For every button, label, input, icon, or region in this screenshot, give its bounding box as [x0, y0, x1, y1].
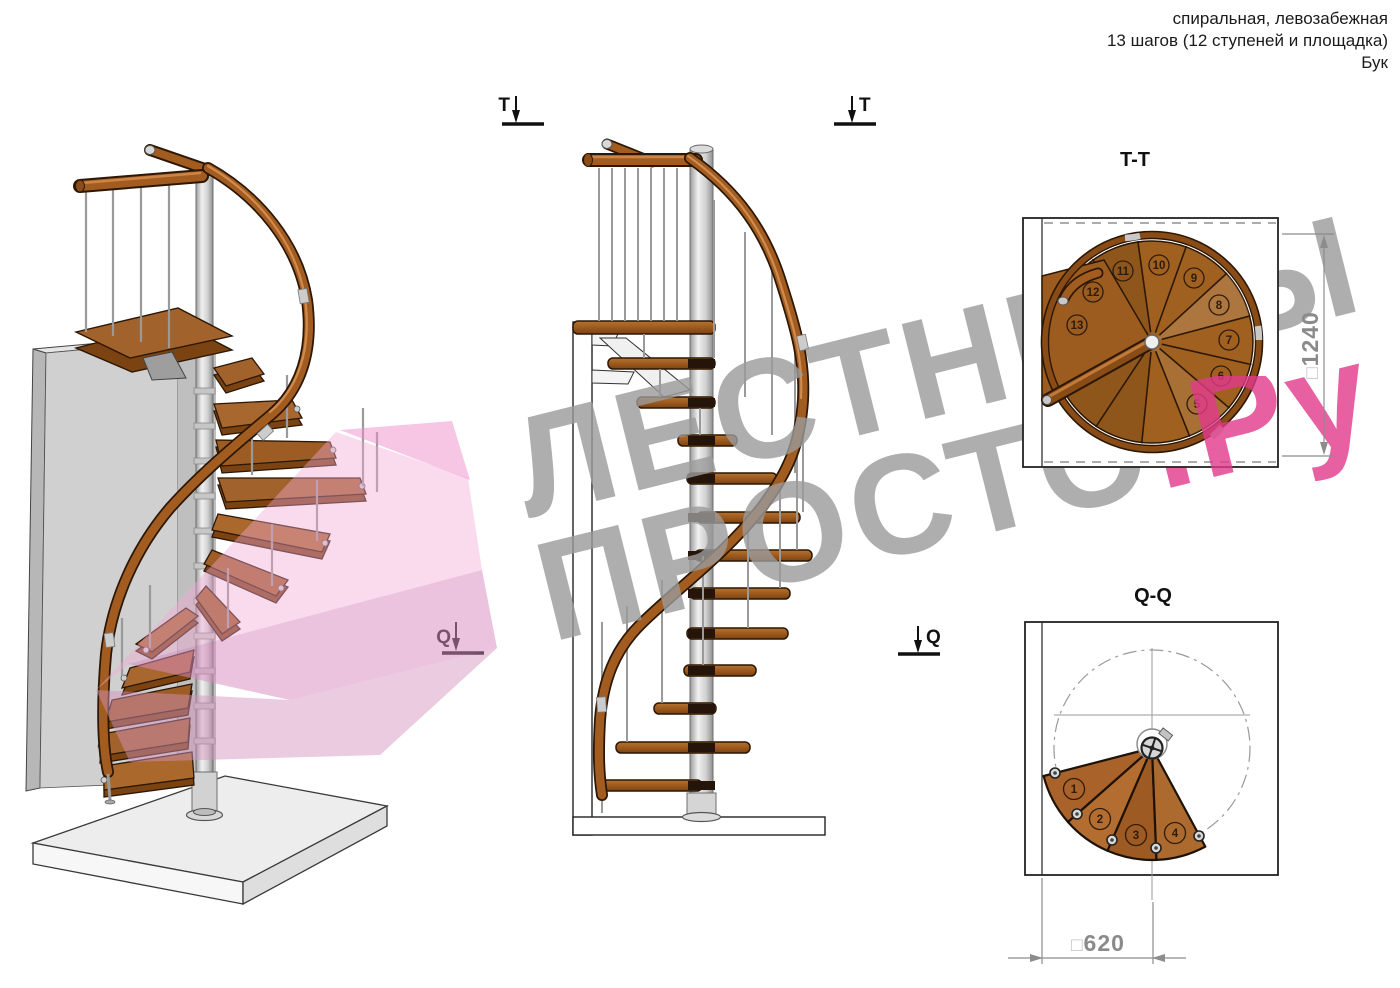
arrow-down-icon	[848, 110, 856, 123]
pole-top-ball	[1145, 335, 1159, 349]
step-number: 13	[1071, 320, 1084, 332]
marker-t-right-label: T	[859, 95, 871, 116]
plan-qq: Q-Q	[1008, 585, 1278, 964]
drawing-canvas: T T Q Q	[0, 0, 1400, 988]
section-marker-t-right: T	[834, 95, 876, 124]
marker-q-right-label: Q	[926, 627, 941, 648]
step-number: 1	[1071, 784, 1078, 796]
step-number: 8	[1216, 300, 1223, 312]
dimension-qq-label: □620	[1071, 930, 1125, 956]
steps-count-label: 13 шагов (12 ступеней и площадка)	[1107, 30, 1388, 52]
step-number: 10	[1153, 260, 1166, 272]
landing-rail-elevation	[584, 140, 697, 167]
step-number: 3	[1133, 830, 1139, 842]
step-number: 9	[1191, 273, 1197, 285]
section-marker-q-right: Q	[898, 626, 941, 654]
marker-t-left-label: T	[498, 95, 510, 116]
staircase-type-label: спиральная, левозабежная	[1107, 8, 1388, 30]
plan-tt-title: T-T	[1120, 149, 1150, 171]
dim-arrow-right-icon	[1030, 954, 1043, 962]
step-number: 11	[1117, 266, 1130, 278]
landing-rail-3d	[76, 146, 209, 193]
arrow-down-icon	[512, 110, 520, 123]
step-number: 7	[1226, 335, 1232, 347]
step-number: 4	[1172, 828, 1179, 840]
title-block: спиральная, левозабежная 13 шагов (12 ст…	[1107, 8, 1388, 74]
material-label: Бук	[1107, 52, 1388, 74]
step-number: 12	[1087, 287, 1100, 299]
dim-arrow-left-icon	[1152, 954, 1165, 962]
arrow-down-icon	[914, 640, 922, 653]
step-number: 2	[1097, 814, 1103, 826]
section-marker-t-left: T	[498, 95, 544, 124]
drawing-sheet: спиральная, левозабежная 13 шагов (12 ст…	[0, 0, 1400, 988]
plan-qq-title: Q-Q	[1134, 585, 1172, 607]
